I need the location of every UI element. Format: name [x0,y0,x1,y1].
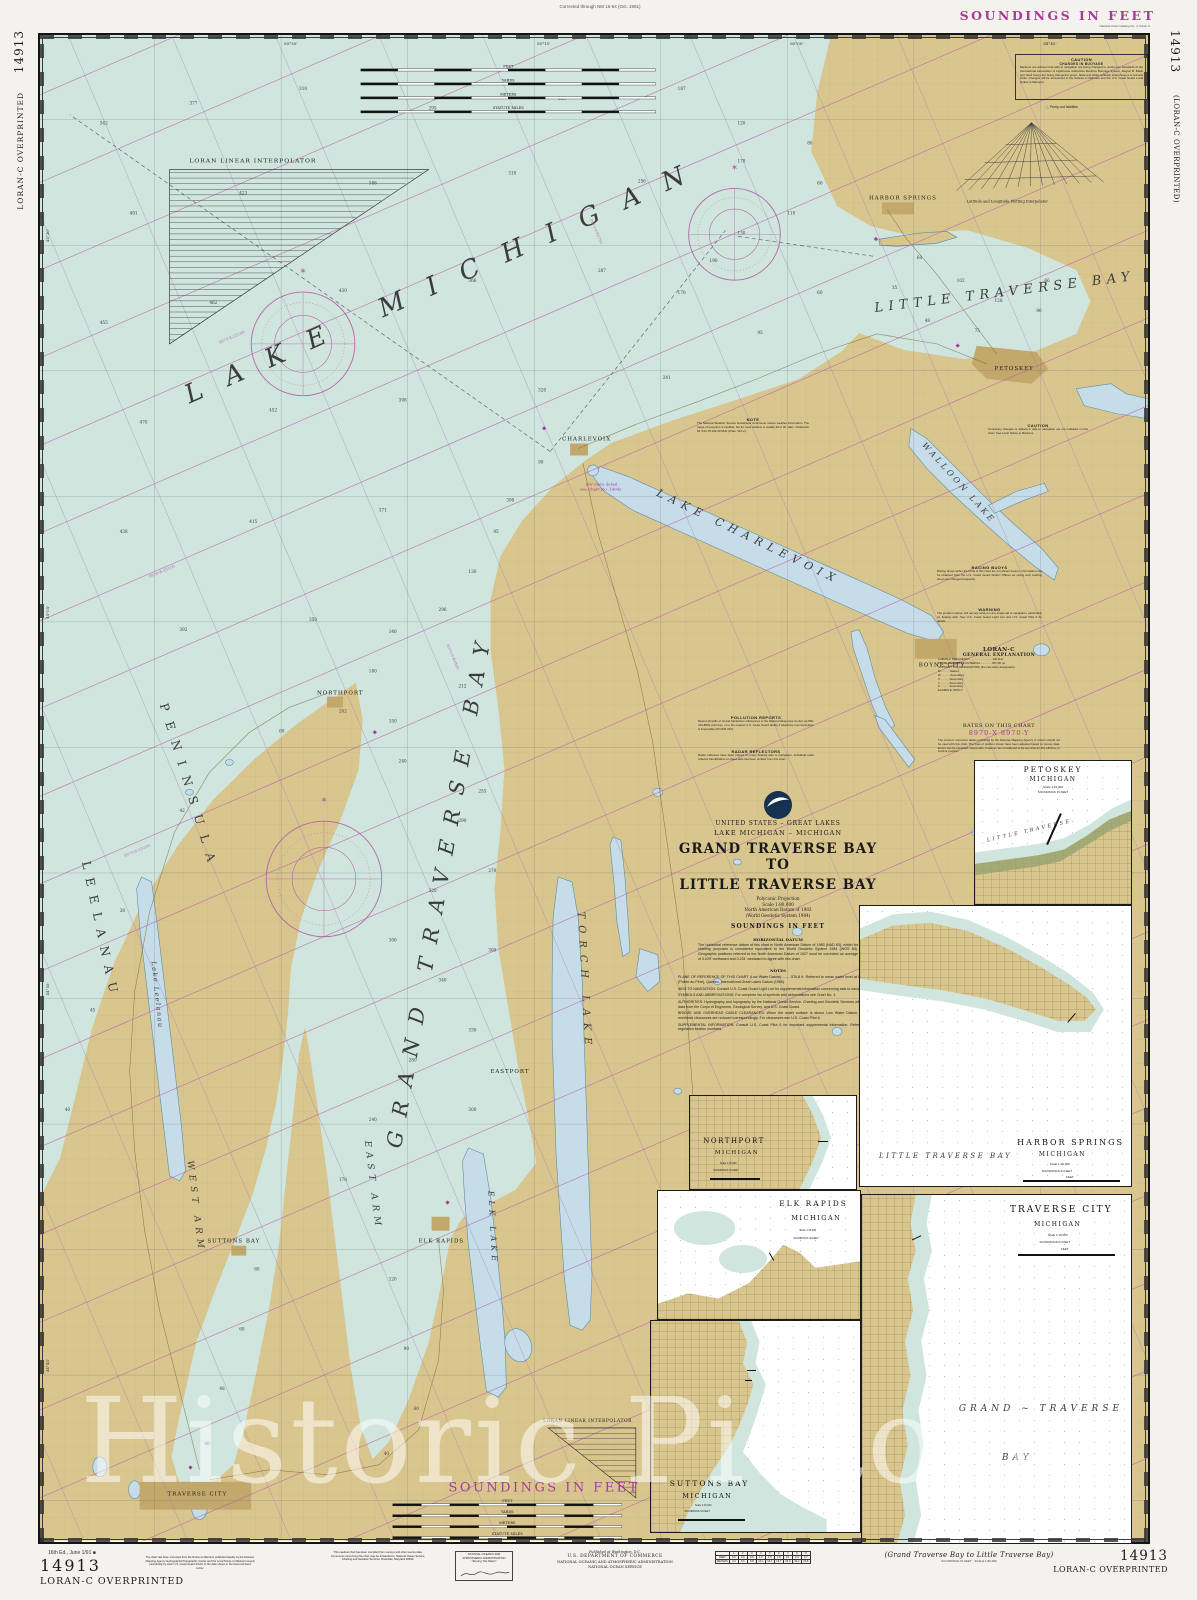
sounding: 130 [737,230,745,235]
scale-bar-segment [582,97,619,99]
chart-neatline-frame: 3423773102952331874014233883102561784554… [38,33,1150,1544]
nautical-chart-page: Corrected through NM 16-64 (Oct. 1991) S… [0,0,1197,1600]
sounding: 102 [957,278,965,283]
scale-bar-segment [393,1537,422,1539]
title-subregion: LAKE MICHIGAN – MICHIGAN [678,829,878,837]
publisher-block: Published at Washington, D.C. U.S. DEPAR… [520,1550,710,1569]
sounding: 401 [130,210,138,215]
sounding: 270 [488,868,496,873]
inset-harbor-springs-water-label: LITTLE TRAVERSE BAY [879,1152,1012,1160]
scale-bar-segment [435,111,472,113]
left-margin-chart-number: 14913 [12,30,26,73]
label-petoskey: PETOSKEY [995,366,1034,372]
scale-bar-label: METERS [499,1521,516,1525]
sounding: 392 [179,627,187,632]
sounding: 287 [598,268,606,273]
latitude-label: 45°20' [45,229,50,242]
scale-bar-segment [479,1515,508,1517]
scale-bar-segment [450,1515,479,1517]
scale-bar-segment [565,1526,594,1528]
sounding: 120 [389,1276,397,1281]
inset-harbor-springs-scalebar [1023,1180,1121,1182]
sounding: 130 [468,569,476,574]
scale-bar-segment [593,1537,622,1539]
sounding: 180 [369,669,377,674]
sounding: 470 [140,420,148,425]
label-charlevoix: CHARLEVOIX [562,437,611,443]
inset-elk-rapids-state: MICHIGAN [791,1214,841,1222]
sounding: 120 [737,121,745,126]
sounding: 310 [508,171,516,176]
inset-suttons-bay-scalebar [678,1519,745,1521]
note-symbols: SYMBOLS AND ABBREVIATIONS: For complete … [678,993,878,998]
scale-bar-segment [536,1537,565,1539]
top-right-catalog-note: Nautical Chart Catalog No. 4, Panel C [1058,24,1150,28]
radar-reflectors-note: RADAR REFLECTORSRadar reflectors have be… [698,749,814,762]
scale-bar-segment [471,69,508,71]
horizontal-datum-heading: HORIZONTAL DATUM [678,937,878,942]
inset-petoskey-state: MICHIGAN [975,776,1131,783]
bottom-right-chart-title: (Grand Traverse Bay to Little Traverse B… [878,1551,1060,1564]
bottom-right-chart-number: 14913 [1060,1548,1168,1564]
scale-bar-label: STATUTE MILES [493,106,525,110]
latitude-label: 44°45' [45,1359,50,1372]
inset-harbor-springs-state: MICHIGAN [1039,1151,1086,1158]
label-suttons-bay: SUTTONS BAY [207,1239,260,1245]
scale-bar-segment [398,97,435,99]
scale-bar-segment [545,69,582,71]
scale-bar-segment [565,1537,594,1539]
inset-petoskey-soundings: SOUNDINGS IN FEET [975,790,1131,794]
signature-squiggle [457,1569,511,1579]
inset-traverse-city-title: TRAVERSE CITY [1010,1205,1113,1215]
longitude-label: 85°00' [790,41,803,46]
feet-meters-conversion-table: 123456789FEET0.30.60.91.21.51.82.12.42.7… [715,1551,811,1564]
sounding: 452 [269,408,277,413]
sounding: 95 [493,529,499,534]
right-margin-overprint: (LORAN-C OVERPRINTED) [1172,95,1180,203]
sounding: 110 [787,210,795,215]
longitude-label: 85°15' [537,41,550,46]
north-star-icon: ✶ [320,796,328,806]
scale-bar-label: STATUTE MILES [492,1532,524,1536]
label-elk-rapids: ELK RAPIDS [419,1239,464,1245]
scale-bar-segment [545,83,582,85]
noaa-logo [763,790,793,820]
sounding: 455 [100,320,108,325]
inset-northport-scale: Scale 1:15,000 [720,1162,737,1165]
inset-elk-rapids: ELK RAPIDS MICHIGAN Scale 1:15,000 SOUND… [657,1190,861,1320]
sounding: 178 [737,159,745,164]
notes-heading: NOTES [678,968,878,973]
inset-northport-pier [818,1141,828,1142]
sounding: 80 [807,141,813,146]
scale-bar-segment [361,111,398,113]
sounding: 296 [439,607,447,612]
sounding: 300 [389,938,397,943]
scale-bar-segment [361,97,398,99]
bottom-left-chart-number: 14913 [40,1556,101,1575]
north-star-icon: ✶ [731,164,739,174]
pump-out-note: ⚓ Pump-out facilities [1045,105,1078,109]
inset-harbor-springs: HARBOR SPRINGS MICHIGAN Scale 1:15,000 S… [859,905,1132,1187]
interpolator-label-top: LORAN LINEAR INTERPOLATOR [189,158,316,165]
inset-traverse-city-bar-label: FEET [1061,1247,1069,1251]
scale-bar-label: YARDS [501,78,515,82]
sounding: 388 [369,180,377,185]
sounding: 80 [254,1267,260,1272]
scale-bar-segment [398,83,435,85]
latitude-label: 44°55' [45,982,50,995]
scale-bar-segment [582,69,619,71]
note-supplemental: SUPPLEMENTAL INFORMATION: Consult U.S. C… [678,1023,878,1032]
watermark: Historic Pictoric [80,1372,1110,1510]
scale-bar-segment [619,83,656,85]
scale-bar-segment [421,1515,450,1517]
sounding: 300 [468,1107,476,1112]
racing-buoys-note: RACING BUOYSRacing buoys within the limi… [937,565,1042,581]
sounding: 90 [404,1346,410,1351]
sounding: 320 [538,388,546,393]
inset-northport-title: NORTHPORT [703,1137,765,1145]
inset-elk-rapids-title: ELK RAPIDS [779,1199,848,1208]
bottom-caution-note-1: The chart has been corrected from the No… [145,1556,255,1570]
sounding: 240 [399,758,407,763]
sounding: 371 [379,507,387,512]
scale-bar-segment [450,1526,479,1528]
scale-bar-segment [471,111,508,113]
sounding: 340 [439,978,447,983]
sounding: 60 [279,728,285,733]
scale-bar-segment [619,111,656,113]
sounding: 300 [506,497,514,502]
scale-bar-label: YARDS [500,1510,514,1514]
scale-bar-segment [421,1526,450,1528]
scale-bar-segment [508,69,545,71]
sounding: 262 [339,709,347,714]
latitude-label: 45°05' [45,606,50,619]
label-eastport: EASTPORT [490,1069,529,1075]
loran-rates-block: RATES ON THIS CHART 8970-X 8970-Y The Lo… [938,723,1060,754]
pollution-reports-note: POLLUTION REPORTSReport all spills of oi… [698,715,814,731]
title-region: UNITED STATES – GREAT LAKES [678,820,878,827]
scale-bar-segment [545,111,582,113]
soundings-unit: SOUNDINGS IN FEET [678,923,878,930]
bottom-left-overprint: LORAN-C OVERPRINTED [40,1576,184,1587]
top-right-soundings-heading: SOUNDINGS IN FEET [950,8,1165,23]
scale-bar-label: FEET [503,64,514,68]
inset-suttons-bay-pier [747,1370,756,1371]
scale-bar-segment [565,1515,594,1517]
note-plane-of-reference: PLANE OF REFERENCE OF THIS CHART (Low Wa… [678,975,878,984]
chart-title-line2: LITTLE TRAVERSE BAY [678,877,878,893]
sounding: 48 [925,318,931,323]
inset-petoskey: PETOSKEY MICHIGAN Scale 1:15,000 SOUNDIN… [974,760,1132,905]
left-margin-overprint: LORAN-C OVERPRINTED [16,92,25,210]
scale-bar-segment [508,83,545,85]
sounding: 150 [389,719,397,724]
scale-bar-segment [435,97,472,99]
horizontal-datum-body: The horizontal reference datum of this c… [698,943,858,962]
scale-bar-segment [593,1515,622,1517]
scale-bar-segment [507,1515,536,1517]
sounding: 310 [299,86,307,91]
chart-title-block: UNITED STATES – GREAT LAKES LAKE MICHIGA… [678,790,878,1032]
label-harbor-springs: HARBOR SPRINGS [869,195,937,201]
small-lake [225,759,233,765]
inset-elk-rapids-soundings: SOUNDINGS IN FEET [793,1237,818,1240]
sounding: 95 [757,330,763,335]
inset-petoskey-scale: Scale 1:15,000 [975,785,1131,789]
scale-bar-segment [582,111,619,113]
sounding: 438 [120,529,128,534]
label-northport: NORTHPORT [317,691,364,697]
inset-northport: NORTHPORT MICHIGAN Scale 1:15,000 SOUNDI… [689,1095,857,1190]
sounding: 342 [100,121,108,126]
inset-petoskey-title: PETOSKEY [975,765,1131,774]
scale-bar-segment [421,1537,450,1539]
scale-bar-segment [398,111,435,113]
scale-bar-segment [471,97,508,99]
scale-bar-segment [450,1537,479,1539]
scale-bar-label: METERS [500,92,517,96]
warning-note: WARNINGThe prudent mariner will not rely… [937,607,1042,623]
sounding: 398 [399,398,407,403]
inset-northport-scalebar [710,1178,760,1180]
longitude-label: 84°45' [1043,41,1056,46]
sounding: 38 [120,908,126,913]
chart-title-line1: GRAND TRAVERSE BAY TO [678,841,878,873]
sounding: 170 [678,290,686,295]
scale-bar-segment [393,1526,422,1528]
noaa-stamp-box: NATIONAL OCEANIC AND ATMOSPHERIC ADMINIS… [455,1551,513,1581]
sounding: 377 [189,101,197,106]
longitude-label: 85°30' [284,41,297,46]
sounding: 170 [339,1177,347,1182]
sounding: 42 [179,808,185,813]
inset-harbor-springs-soundings: SOUNDINGS IN FEET [1042,1169,1073,1173]
north-star-icon: ✶ [299,267,307,277]
inset-harbor-springs-scale: Scale 1:15,000 [1050,1162,1070,1166]
scale-bar-segment [507,1526,536,1528]
sounding: 96 [1036,308,1042,313]
sounding: 60 [239,1326,245,1331]
sounding: 60 [917,255,923,260]
inset-harbor-springs-title: HARBOR SPRINGS [1017,1138,1124,1147]
scale-bar-segment [593,1526,622,1528]
caution-temporary: CAUTIONTemporary changes or defects in a… [988,423,1088,436]
sounding: 75 [975,328,981,333]
sounding: 300 [488,948,496,953]
scale-bar-segment [508,111,545,113]
inset-traverse-city-soundings: SOUNDINGS IN FEET [1040,1240,1071,1244]
caution-buoyage-box: CAUTION CHANGES IN BUOYAGE Mariners are … [1015,54,1148,100]
note-authorities: AUTHORITIES: Hydrography and topography … [678,1000,878,1009]
inset-traverse-city-scalebar [1018,1254,1115,1256]
scale-bar-segment [536,1515,565,1517]
detail-note-line2: see Chart No. 14942 [580,486,622,491]
scale-bar-segment [536,1526,565,1528]
scale-bar-segment [508,97,545,99]
scale-bar-segment [545,97,582,99]
scale-bar-segment [619,69,656,71]
scale-bar-segment [619,97,656,99]
sounding: 430 [339,288,347,293]
small-lake [674,1088,682,1094]
sounding: 45 [90,1007,96,1012]
loran-general-explanation: LORAN-C GENERAL EXPLANATION LORAN-C FREQ… [938,647,1060,693]
note-aids: AIDS TO NAVIGATION: Consult U.S. Coast G… [678,987,878,992]
scale-bar-segment [471,83,508,85]
inset-traverse-city-scale: Scale 1:15,000 [1048,1233,1068,1237]
scale-bar-segment [393,1515,422,1517]
scale-bar-segment [361,69,398,71]
inset-elk-rapids-shoal-patch [719,1245,767,1273]
datum2: (World Geodetic System 1984) [678,913,878,919]
right-margin-chart-number: 14913 [1168,30,1182,73]
round-lake [588,465,599,476]
loran-explanation-line: EXAMPLE: 8970-Y [938,689,1060,693]
top-center-correction-note: Corrected through NM 16-64 (Oct. 1991) [470,4,730,9]
scale-bar-segment [479,1526,508,1528]
sounding: 255 [478,788,486,793]
inset-elk-rapids-shoal-patch [674,1211,735,1244]
sounding: 60 [817,180,823,185]
inset-suttons-bay-soundings: SOUNDINGS IN FEET [684,1510,709,1513]
scale-bar-segment [479,1537,508,1539]
sounding: 241 [663,375,671,380]
inset-northport-state: MICHIGAN [715,1150,759,1156]
bottom-right-overprint: LORAN-C OVERPRINTED [1040,1565,1168,1574]
inset-northport-soundings: SOUNDINGS IN FEET [713,1169,738,1172]
sounding: 330 [468,1027,476,1032]
inset-traverse-city-state: MICHIGAN [1034,1221,1081,1228]
scale-bar-segment [361,83,398,85]
sounding: 295 [429,106,437,111]
scale-bar-segment [435,83,472,85]
sounding: 415 [249,519,257,524]
scale-bar-segment [435,69,472,71]
sounding: 90 [538,459,544,464]
inset-harbor-springs-bar-label: FEET [1066,1175,1074,1179]
latlon-interpolator-caption: Latitude and Longitude Plotting Interpol… [967,199,1049,203]
scale-bar-segment [398,69,435,71]
sounding: 40 [65,1107,71,1112]
scale-bar-segment [507,1537,536,1539]
sounding: 35 [892,285,898,290]
inset-elk-rapids-scale: Scale 1:15,000 [799,1229,816,1232]
scale-bar-segment [582,83,619,85]
sounding: 350 [309,617,317,622]
note-bridge: BRIDGE AND OVERHEAD CABLE CLEARANCES: Wh… [678,1011,878,1020]
sounding: 140 [389,629,397,634]
sounding: 187 [678,86,686,91]
sounding: 60 [817,290,823,295]
note-weather: NOTEThe National Weather Service broadca… [697,417,809,433]
sounding: 240 [369,1117,377,1122]
bottom-caution-note-2: This nautical chart has been compiled fr… [330,1551,426,1562]
